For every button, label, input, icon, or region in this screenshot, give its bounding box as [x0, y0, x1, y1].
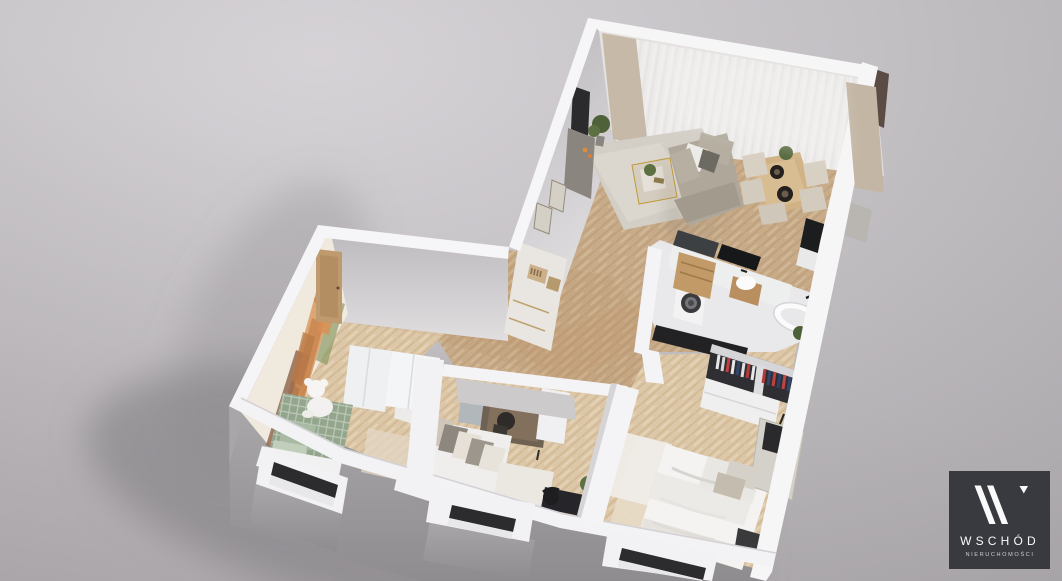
svg-text:NIERUCHOMOŚCI: NIERUCHOMOŚCI [966, 550, 1035, 558]
svg-text:WSCHÓD: WSCHÓD [960, 533, 1040, 548]
